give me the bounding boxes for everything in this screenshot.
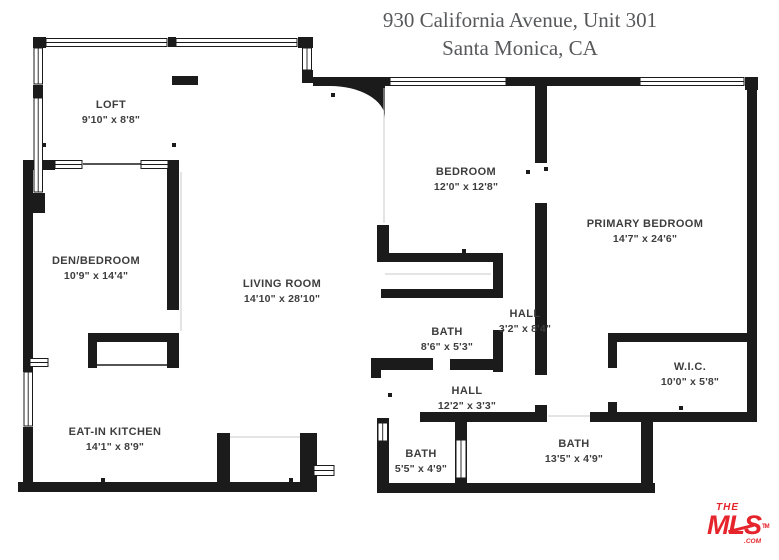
wall (33, 37, 46, 48)
tick-mark (101, 478, 105, 482)
room-label-wic: W.I.C. 10'0" x 5'8" (661, 360, 719, 390)
tick-mark (462, 249, 466, 253)
wall (608, 402, 617, 412)
threshold-lines-group (83, 88, 590, 437)
wall (31, 193, 45, 213)
wall (608, 333, 757, 342)
tick-mark (289, 478, 293, 482)
wall (302, 70, 313, 83)
mls-logo-tm: TM (762, 515, 769, 539)
tick-mark (617, 79, 621, 83)
wall (547, 77, 640, 86)
room-label-primary-bedroom: PRIMARY BEDROOM 14'7" x 24'6" (587, 217, 704, 247)
room-label-bedroom: BEDROOM 12'0" x 12'8" (434, 165, 498, 195)
tick-mark (750, 205, 754, 209)
wall (608, 342, 617, 368)
wall (535, 83, 547, 163)
room-label-bath-main: BATH 8'6" x 5'3" (421, 325, 473, 355)
wall (167, 160, 179, 310)
wall (377, 253, 503, 262)
room-label-living-room: LIVING ROOM 14'10" x 28'10" (243, 277, 321, 307)
room-label-hall-upper: HALL 3'2" x 8'4" (499, 307, 551, 337)
floorplan-page: 930 California Avenue, Unit 301 Santa Mo… (0, 0, 779, 560)
wall (23, 160, 33, 372)
room-label-bath-long: BATH 13'5" x 4'9" (545, 437, 603, 467)
wall (167, 333, 179, 368)
wall (535, 203, 547, 375)
room-label-eat-in-kitchen: EAT-IN KITCHEN 14'1" x 8'9" (69, 425, 162, 455)
wall (88, 333, 179, 342)
tick-mark (679, 406, 683, 410)
tick-mark (544, 167, 548, 171)
mls-logo: THE MLSTM .COM (701, 503, 765, 557)
wall (377, 483, 655, 493)
room-label-hall-lower: HALL 12'2" x 3'3" (438, 384, 496, 414)
room-label-den-bedroom: DEN/BEDROOM 10'9" x 14'4" (52, 254, 140, 284)
wall (371, 358, 381, 378)
wall (590, 412, 757, 422)
wall-column (172, 76, 198, 85)
tick-mark (388, 393, 392, 397)
wall (23, 427, 33, 489)
wall (381, 289, 503, 298)
wall (298, 37, 313, 48)
wall (313, 77, 390, 86)
tick-mark (331, 93, 335, 97)
tick-mark (526, 170, 530, 174)
curved-wall (330, 86, 385, 118)
wall (18, 482, 317, 492)
wall (33, 85, 43, 98)
tick-mark (172, 143, 176, 147)
room-label-bath-small: BATH 5'5" x 4'9" (395, 447, 447, 477)
room-label-loft: LOFT 9'10" x 8'8" (82, 98, 140, 128)
wall (747, 86, 757, 422)
wall (168, 37, 176, 47)
wall (641, 418, 653, 493)
mls-logo-mls: MLSTM (701, 513, 765, 537)
